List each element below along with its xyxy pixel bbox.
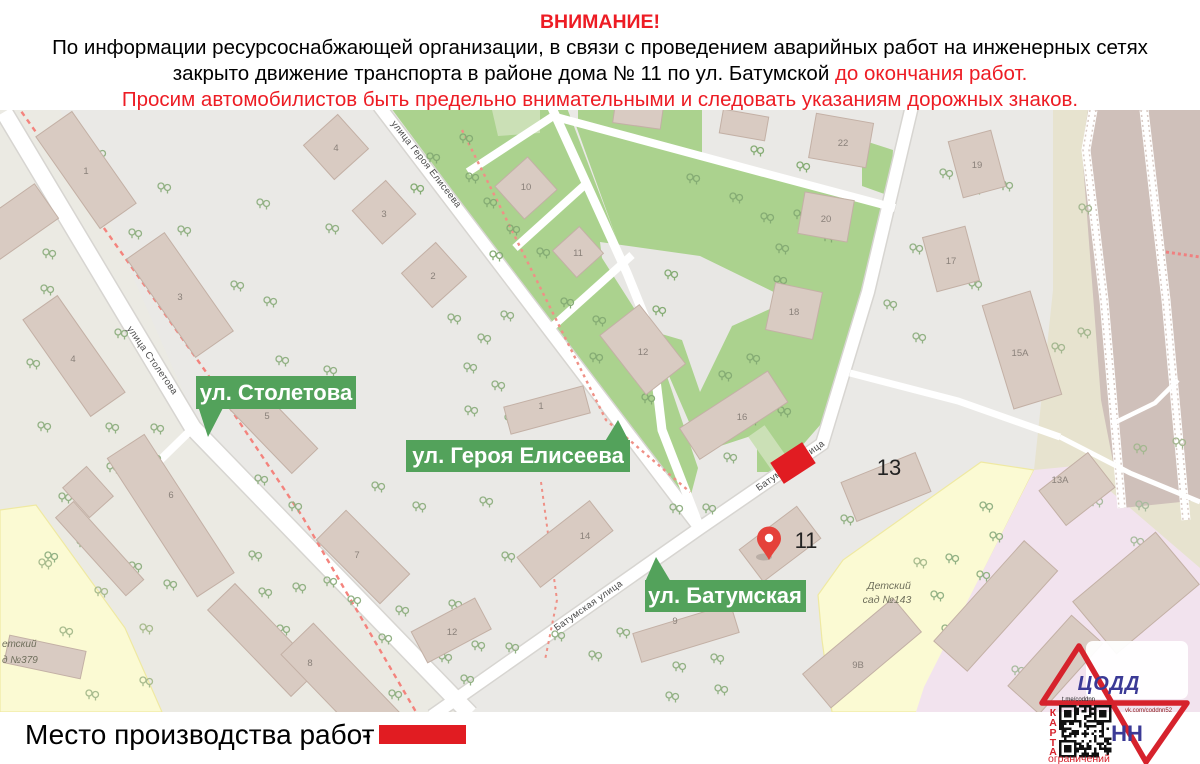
svg-text:ул. Героя Елисеева: ул. Героя Елисеева [412, 443, 624, 468]
svg-text:22: 22 [838, 138, 849, 149]
svg-text:9В: 9В [852, 660, 864, 671]
svg-text:8: 8 [307, 658, 312, 669]
svg-text:7: 7 [354, 550, 359, 561]
svg-text:5: 5 [264, 411, 269, 422]
svg-text:ВНИМАНИЕ!: ВНИМАНИЕ! [540, 11, 660, 33]
svg-text:3: 3 [177, 292, 182, 303]
svg-text:15А: 15А [1012, 348, 1030, 359]
svg-text:3: 3 [381, 209, 386, 220]
svg-text:По информации ресурсоснабжающе: По информации ресурсоснабжающей организа… [52, 36, 1149, 59]
svg-text:16: 16 [737, 412, 748, 423]
svg-text:11: 11 [573, 248, 583, 259]
svg-text:20: 20 [821, 214, 832, 225]
svg-text:13А: 13А [1052, 475, 1070, 486]
svg-text:1: 1 [538, 401, 543, 412]
svg-text:6: 6 [168, 490, 173, 501]
svg-text:ЦОДД: ЦОДД [1078, 673, 1141, 695]
svg-text:vk.com/coddnn52: vk.com/coddnn52 [1125, 708, 1173, 714]
svg-text:етский: етский [2, 639, 37, 650]
svg-text:12: 12 [638, 347, 649, 358]
svg-text:Детский: Детский [866, 580, 911, 592]
svg-text:Просим автомобилистов быть пре: Просим автомобилистов быть предельно вни… [122, 88, 1078, 111]
svg-text:4: 4 [333, 143, 338, 154]
svg-text:ограничений: ограничений [1048, 753, 1110, 764]
svg-text:1: 1 [83, 166, 88, 177]
svg-text:д №379: д №379 [2, 655, 38, 666]
svg-text:19: 19 [972, 160, 983, 171]
svg-text:закрыто движение транспорта в: закрыто движение транспорта в районе дом… [173, 62, 1028, 85]
svg-text:11: 11 [795, 528, 818, 553]
svg-text:13: 13 [877, 455, 901, 480]
svg-text:Место производства работ: Место производства работ [25, 719, 375, 750]
svg-text:4: 4 [70, 354, 75, 365]
svg-text:12: 12 [447, 627, 458, 638]
svg-text:-: - [362, 719, 371, 750]
svg-text:9: 9 [672, 616, 677, 627]
svg-text:10: 10 [521, 182, 532, 193]
svg-text:ул. Батумская: ул. Батумская [648, 583, 802, 608]
svg-text:2: 2 [430, 271, 435, 282]
svg-text:17: 17 [946, 256, 957, 267]
svg-text:НН: НН [1111, 721, 1143, 746]
svg-text:сад №143: сад №143 [863, 594, 912, 606]
svg-text:18: 18 [789, 307, 800, 318]
svg-text:ул. Столетова: ул. Столетова [200, 380, 353, 405]
svg-text:t.me/coddnn: t.me/coddnn [1062, 697, 1095, 703]
svg-text:14: 14 [580, 531, 591, 542]
